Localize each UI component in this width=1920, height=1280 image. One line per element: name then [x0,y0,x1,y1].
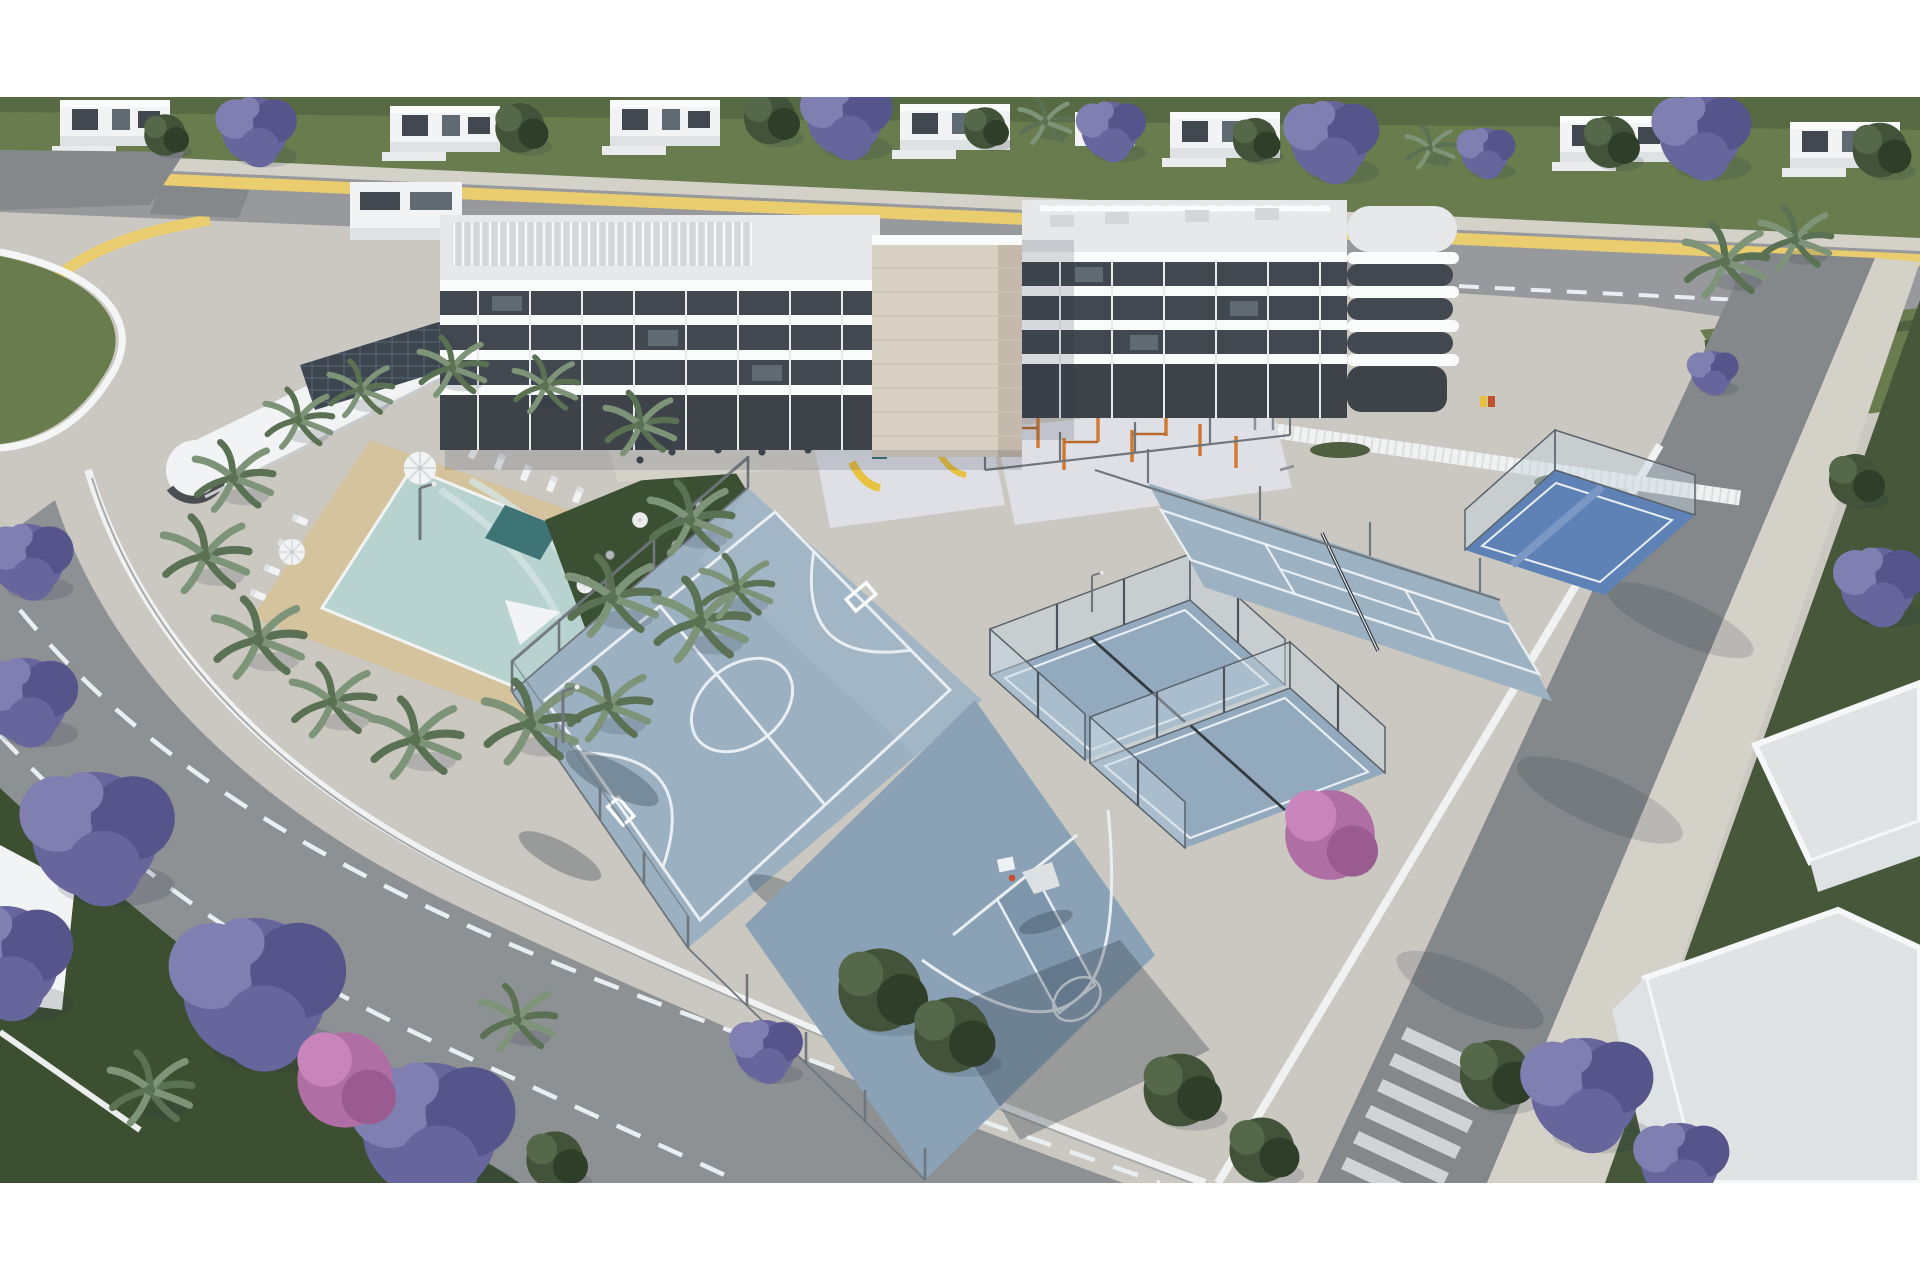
parasol [279,539,305,565]
roof-pergola [452,222,752,266]
storefront-sign [1480,396,1487,407]
elevator-tower [872,235,1074,457]
garage-ramp [150,185,250,218]
left-block [440,215,880,450]
storefront-sign [1488,396,1495,407]
letterbox-top [0,0,1920,97]
tower-shadow [1022,240,1074,440]
parasol [404,452,437,485]
letterbox-bottom [0,1183,1920,1280]
aerial-render [0,0,1920,1280]
building-shadow [445,450,1022,470]
scene-canvas [0,0,1920,1280]
